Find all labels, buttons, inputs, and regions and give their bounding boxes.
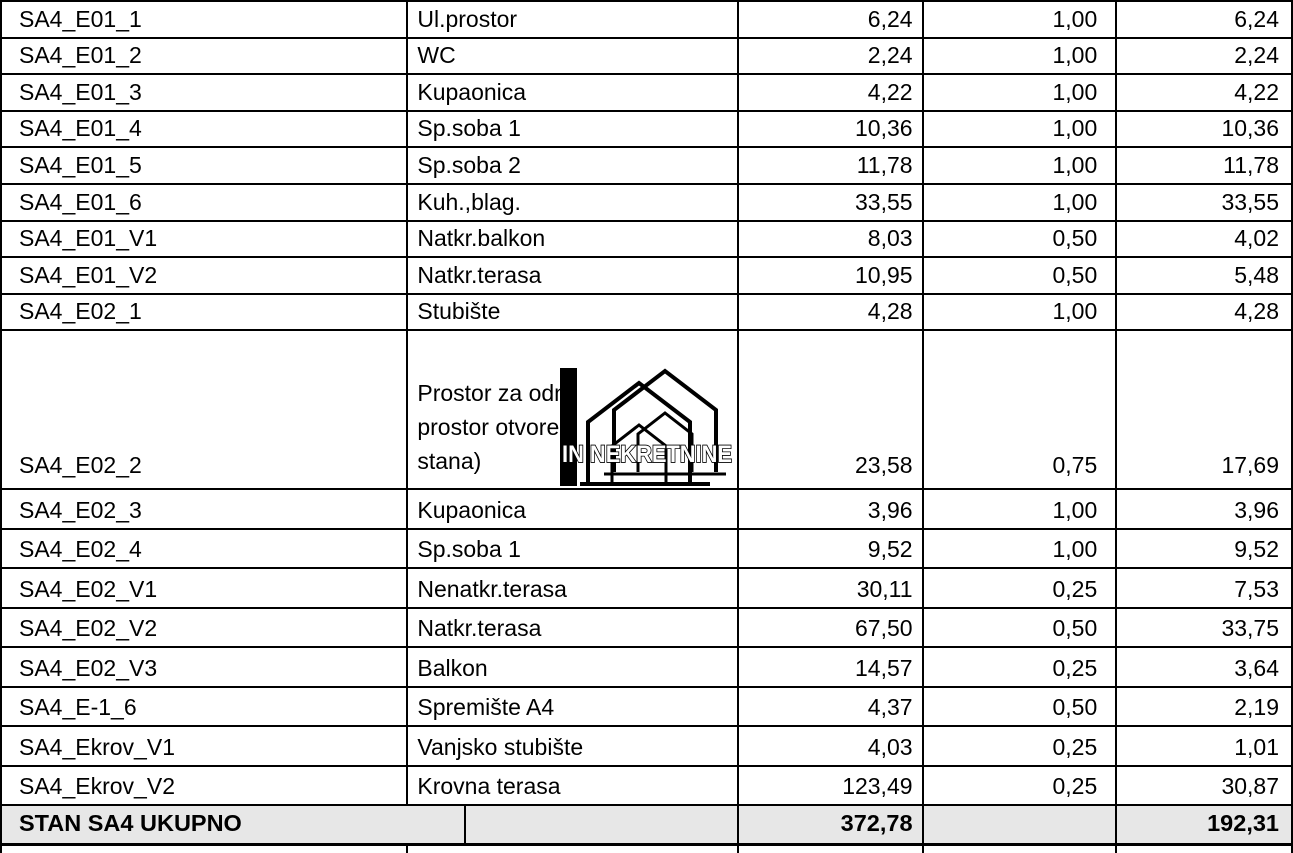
cell-reduced-area: 4,02 xyxy=(1117,222,1293,257)
cell-space-id: SA4_E02_V2 xyxy=(2,609,408,647)
cell-reduced-area: 11,78 xyxy=(1117,148,1293,183)
cell-reduced-area xyxy=(1117,846,1293,853)
table-row: SA4_E02_V1 Nenatkr.terasa 30,11 0,25 7,5… xyxy=(2,569,1293,609)
cell-coefficient: 1,00 xyxy=(924,112,1118,147)
cell-reduced-area: 3,96 xyxy=(1117,490,1293,528)
cell-coefficient: 0,50 xyxy=(924,258,1118,293)
cell-area: 4,22 xyxy=(739,75,924,110)
cell-reduced-area: 17,69 xyxy=(1117,331,1293,488)
cell-space-name: Prostor za odm prostor otvoren stana) xyxy=(408,331,738,488)
table-row: SA4_E01_4 Sp.soba 1 10,36 1,00 10,36 xyxy=(2,112,1293,149)
cell-coefficient: 1,00 xyxy=(924,530,1118,568)
table-row: SA4_E01_V2 Natkr.terasa 10,95 0,50 5,48 xyxy=(2,258,1293,295)
cell-area: 67,50 xyxy=(739,609,924,647)
cell-area: 33,55 xyxy=(739,185,924,220)
cell-reduced-area: 4,28 xyxy=(1117,295,1293,330)
cell-space-id: SA4_E01_V1 xyxy=(2,222,408,257)
cell-area: 4,03 xyxy=(739,727,924,765)
cell-area: 4,37 xyxy=(739,688,924,726)
cell-space-name: Kuh.,blag. xyxy=(408,185,738,220)
cell-space-id: SA4_Ekrov_V1 xyxy=(2,727,408,765)
cell-area: 123,49 xyxy=(739,767,924,805)
cell-coefficient: 0,50 xyxy=(924,222,1118,257)
cell-space-id: SA4_E01_4 xyxy=(2,112,408,147)
cell-reduced-area: 10,36 xyxy=(1117,112,1293,147)
cell-reduced-area: 30,87 xyxy=(1117,767,1293,805)
cell-coefficient: 1,00 xyxy=(924,75,1118,110)
cell-area: 372,78 xyxy=(739,806,924,843)
table-row: SA4_E-1_6 Spremište A4 4,37 0,50 2,19 xyxy=(2,688,1293,728)
cell-area: 9,52 xyxy=(739,530,924,568)
cell-coefficient: 0,50 xyxy=(924,609,1118,647)
table-row: SA4_Ekrov_V1 Vanjsko stubište 4,03 0,25 … xyxy=(2,727,1293,767)
table-row: SA4_E01_1 Ul.prostor 6,24 1,00 6,24 xyxy=(2,2,1293,39)
table-row: SA4_E02_2 Prostor za odm prostor otvoren… xyxy=(2,331,1293,490)
area-table: SA4_E01_1 Ul.prostor 6,24 1,00 6,24 SA4_… xyxy=(0,0,1293,853)
cell-area: 10,36 xyxy=(739,112,924,147)
cell-coefficient: 0,25 xyxy=(924,727,1118,765)
table-row: SA4_E01_V1 Natkr.balkon 8,03 0,50 4,02 xyxy=(2,222,1293,259)
cell-space-name: WC xyxy=(408,39,738,74)
cell-space-name: Balkon xyxy=(408,648,738,686)
cell-coefficient: 1,00 xyxy=(924,148,1118,183)
cell-area: 14,57 xyxy=(739,648,924,686)
table-row: SA4_E01_2 WC 2,24 1,00 2,24 xyxy=(2,39,1293,76)
cell-space-id: SA4_E02_2 xyxy=(2,331,408,488)
cell-space-name: Natkr.terasa xyxy=(408,258,738,293)
cell-reduced-area: 1,01 xyxy=(1117,727,1293,765)
cell-space-id xyxy=(2,846,408,853)
cell-coefficient xyxy=(924,806,1118,843)
cell-space-id: SA4_E02_3 xyxy=(2,490,408,528)
cell-space-name xyxy=(408,846,738,853)
table-row: SA4_E02_4 Sp.soba 1 9,52 1,00 9,52 xyxy=(2,530,1293,570)
cell-space-name: Vanjsko stubište xyxy=(408,727,738,765)
cell-area: 2,24 xyxy=(739,39,924,74)
cell-space-id: SA4_E02_4 xyxy=(2,530,408,568)
cell-space-name: Ul.prostor xyxy=(408,2,738,37)
cell-space-id: SA4_E01_3 xyxy=(2,75,408,110)
cell-coefficient: 1,00 xyxy=(924,490,1118,528)
table-row: SA4_E02_1 Stubište 4,28 1,00 4,28 xyxy=(2,295,1293,332)
cell-space-id: SA4_E-1_6 xyxy=(2,688,408,726)
cell-area: 8,03 xyxy=(739,222,924,257)
cell-space-name: Sp.soba 2 xyxy=(408,148,738,183)
cell-space-id: SA4_Ekrov_V2 xyxy=(2,767,408,805)
table-row: SA4_Ekrov_V2 Krovna terasa 123,49 0,25 3… xyxy=(2,767,1293,807)
cell-space-name: Sp.soba 1 xyxy=(408,530,738,568)
cell-area xyxy=(739,846,924,853)
cell-space-name: Kupaonica xyxy=(408,490,738,528)
table-row: SA4_E02_V3 Balkon 14,57 0,25 3,64 xyxy=(2,648,1293,688)
cell-space-id: SA4_E01_V2 xyxy=(2,258,408,293)
cell-coefficient: 1,00 xyxy=(924,39,1118,74)
cell-area: 6,24 xyxy=(739,2,924,37)
cell-reduced-area: 192,31 xyxy=(1117,806,1293,843)
table-row: SA4_E02_3 Kupaonica 3,96 1,00 3,96 xyxy=(2,490,1293,530)
cell-reduced-area: 3,64 xyxy=(1117,648,1293,686)
cell-reduced-area: 33,55 xyxy=(1117,185,1293,220)
cell-space-name: Spremište A4 xyxy=(408,688,738,726)
cell-coefficient: 1,00 xyxy=(924,185,1118,220)
cell-coefficient: 1,00 xyxy=(924,2,1118,37)
cell-coefficient: 0,75 xyxy=(924,331,1118,488)
cell-coefficient: 0,25 xyxy=(924,767,1118,805)
cell-space-name: Kupaonica xyxy=(408,75,738,110)
cell-coefficient xyxy=(924,846,1118,853)
cell-reduced-area: 2,19 xyxy=(1117,688,1293,726)
cell-area: 4,28 xyxy=(739,295,924,330)
cell-reduced-area: 5,48 xyxy=(1117,258,1293,293)
cell-space-id: SA4_E01_2 xyxy=(2,39,408,74)
cell-space-name: Stubište xyxy=(408,295,738,330)
cell-reduced-area: 4,22 xyxy=(1117,75,1293,110)
cell-space-id: SA4_E02_1 xyxy=(2,295,408,330)
document-page: SA4_E01_1 Ul.prostor 6,24 1,00 6,24 SA4_… xyxy=(0,0,1293,853)
cell-space-id: STAN SA4 UKUPNO xyxy=(2,806,466,843)
cell-space-id: SA4_E01_1 xyxy=(2,2,408,37)
cell-reduced-area: 7,53 xyxy=(1117,569,1293,607)
cell-space-name xyxy=(466,806,739,843)
cell-reduced-area: 2,24 xyxy=(1117,39,1293,74)
table-row: STAN SA4 UKUPNO 372,78 192,31 xyxy=(2,806,1293,846)
cell-space-name: Sp.soba 1 xyxy=(408,112,738,147)
cell-area: 11,78 xyxy=(739,148,924,183)
cell-coefficient: 1,00 xyxy=(924,295,1118,330)
cell-space-name: Natkr.balkon xyxy=(408,222,738,257)
table-row xyxy=(2,846,1293,853)
table-row: SA4_E01_6 Kuh.,blag. 33,55 1,00 33,55 xyxy=(2,185,1293,222)
cell-space-name: Natkr.terasa xyxy=(408,609,738,647)
cell-area: 3,96 xyxy=(739,490,924,528)
cell-space-id: SA4_E01_5 xyxy=(2,148,408,183)
table-row: SA4_E01_5 Sp.soba 2 11,78 1,00 11,78 xyxy=(2,148,1293,185)
cell-space-id: SA4_E02_V3 xyxy=(2,648,408,686)
cell-reduced-area: 9,52 xyxy=(1117,530,1293,568)
cell-space-id: SA4_E02_V1 xyxy=(2,569,408,607)
cell-area: 10,95 xyxy=(739,258,924,293)
cell-coefficient: 0,25 xyxy=(924,648,1118,686)
cell-area: 30,11 xyxy=(739,569,924,607)
cell-space-id: SA4_E01_6 xyxy=(2,185,408,220)
table-row: SA4_E01_3 Kupaonica 4,22 1,00 4,22 xyxy=(2,75,1293,112)
cell-area: 23,58 xyxy=(739,331,924,488)
table-row: SA4_E02_V2 Natkr.terasa 67,50 0,50 33,75 xyxy=(2,609,1293,649)
cell-reduced-area: 33,75 xyxy=(1117,609,1293,647)
cell-space-name: Nenatkr.terasa xyxy=(408,569,738,607)
cell-reduced-area: 6,24 xyxy=(1117,2,1293,37)
cell-coefficient: 0,50 xyxy=(924,688,1118,726)
cell-coefficient: 0,25 xyxy=(924,569,1118,607)
cell-space-name: Krovna terasa xyxy=(408,767,738,805)
